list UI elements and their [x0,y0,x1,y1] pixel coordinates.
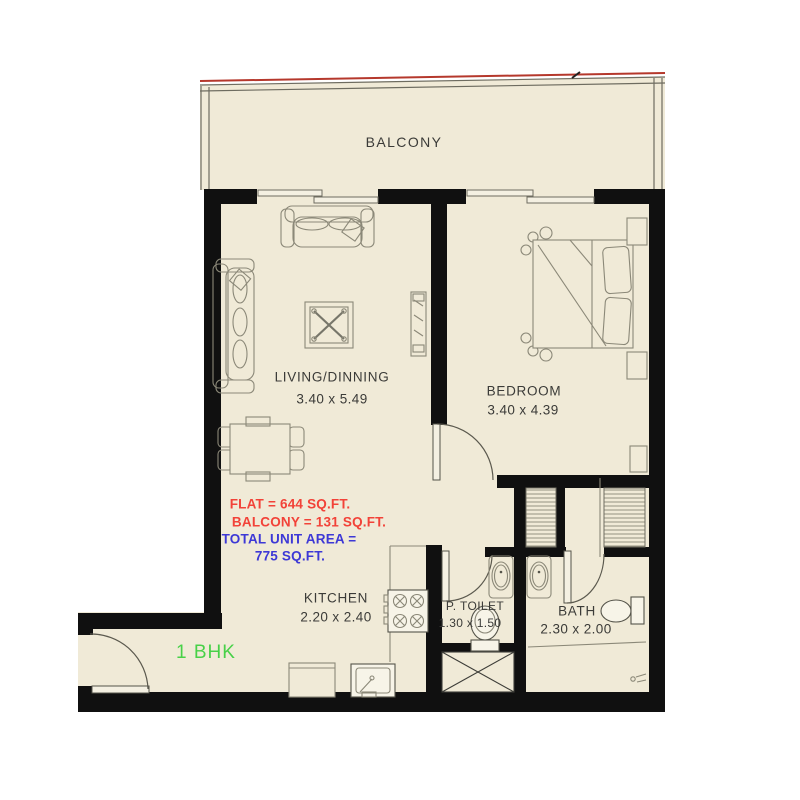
bed [521,227,633,361]
wall-right [649,189,665,712]
unit-type-title: 1 BHK [176,642,236,664]
wall-bath-top-right [604,547,649,557]
bedroom-dims: 3.40 x 4.39 [487,403,558,418]
shaft-hatched-right [600,478,645,557]
nightstand-top [627,218,647,245]
wall-left [204,189,221,629]
wall-shaft-stub [556,478,565,547]
ptoilet-dims: 1.30 x 1.50 [439,616,502,630]
kitchen-stove [384,590,428,632]
bath-label: BATH [558,604,596,619]
bath-dims: 2.30 x 2.00 [540,622,611,637]
kitchen-sink [351,664,395,697]
bedroom-dresser [630,446,647,472]
wall-top-mid [378,189,466,204]
living-room-dims: 3.40 x 5.49 [296,392,367,407]
area-flat-note: FLAT = 644 SQ.FT. [230,497,351,512]
area-total-value: 775 SQ.FT. [255,549,325,564]
wall-hallway-left-upper [78,613,93,635]
wall-hallway-top [78,613,222,629]
wall-living-bedroom [431,189,447,425]
area-balcony-note: BALCONY = 131 SQ.FT. [232,515,386,530]
nightstand-bottom [627,352,647,379]
living-room-label: LIVING/DINNING [275,370,390,385]
area-total-label: TOTAL UNIT AREA = [222,532,357,547]
floor-plan-drawing [0,0,800,800]
bedroom-label: BEDROOM [487,384,562,399]
kitchen-dims: 2.20 x 2.40 [300,610,371,625]
balcony-label: BALCONY [366,134,443,150]
floor-plan: BALCONY LIVING/DINNING 3.40 x 5.49 BEDRO… [0,0,800,800]
ptoilet-label: P. TOILET [446,599,504,613]
wall-toilet-bath-divider [514,475,526,692]
kitchen-label: KITCHEN [304,591,368,606]
shaft-hatched-left [526,488,556,547]
